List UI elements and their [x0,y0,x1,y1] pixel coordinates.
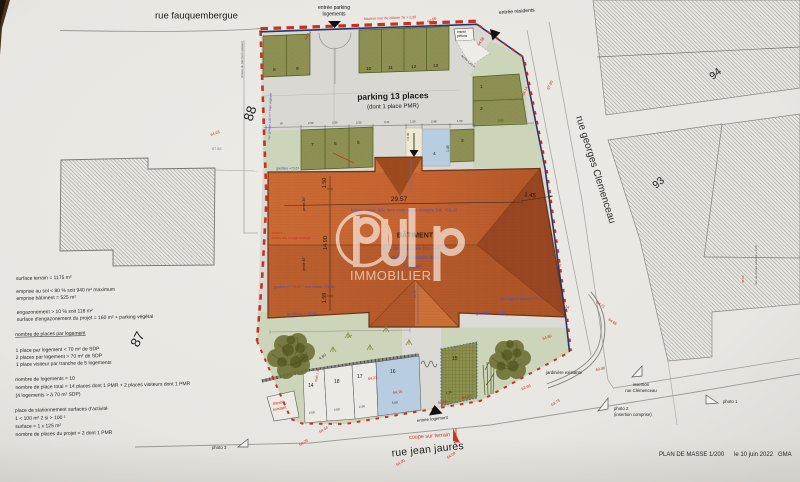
svg-text:3: 3 [461,138,464,144]
svg-text:surface = 1 x 125 m²: surface = 1 x 125 m² [15,423,61,430]
svg-text:6: 6 [334,141,337,147]
svg-text:2: 2 [480,106,483,112]
svg-text:7: 7 [311,142,314,148]
svg-text:17: 17 [357,374,363,380]
svg-text:1.45: 1.45 [446,145,450,152]
svg-text:2.50: 2.50 [356,120,362,124]
svg-text:11: 11 [388,65,393,71]
svg-text:8: 8 [273,67,276,73]
svg-text:gouttière + 73.67: gouttière + 73.67 [287,311,318,316]
svg-text:gouttière +73.67: gouttière +73.67 [276,167,299,171]
svg-text:29.57: 29.57 [391,196,408,203]
svg-text:5: 5 [357,140,360,146]
svg-text:tuiles ton rouge orangé: tuiles ton rouge orangé [272,236,311,240]
svg-text:10: 10 [366,66,372,72]
svg-text:clôture du bâtiment existant: clôture du bâtiment existant [240,41,244,78]
svg-text:IMMOBILIER: IMMOBILIER [350,268,432,283]
svg-text:9: 9 [296,66,299,72]
svg-text:1.50: 1.50 [457,119,463,123]
svg-text:pente 36°: pente 36° [302,196,306,211]
svg-text:insertion: insertion [633,382,650,387]
svg-text:(insertion comprise): (insertion comprise) [614,412,652,417]
svg-text:2.88: 2.88 [431,119,437,123]
svg-text:18: 18 [334,379,340,385]
svg-text:gouttière + 73.67: gouttière + 73.67 [476,311,507,316]
svg-text:gouttière +73.67 · mur bahut +: gouttière +73.67 · mur bahut +74.96 [274,285,335,289]
svg-text:2.50: 2.50 [332,121,338,125]
svg-text:mur de clôture existant + 2,00: mur de clôture existant + 2,00 [754,245,758,285]
svg-text:mur pignon toiture +75.20: mur pignon toiture +75.20 [500,297,543,301]
svg-text:surface terrain = 1175 m²: surface terrain = 1175 m² [16,275,72,282]
svg-text:+64.75: +64.75 [413,290,417,300]
svg-text:67.85: 67.85 [212,147,222,151]
svg-text:W: W [280,122,283,126]
svg-text:65.86: 65.86 [741,275,745,283]
svg-text:2.50: 2.50 [309,410,316,415]
svg-text:1.50: 1.50 [410,120,416,124]
svg-text:2.50: 2.50 [334,407,341,412]
svg-text:entrée parking: entrée parking [318,5,350,11]
svg-text:2.50: 2.50 [308,121,314,125]
svg-text:pente 45°: pente 45° [302,256,306,271]
svg-text:1 < 100 m² 2 si > 100 ²: 1 < 100 m² 2 si > 100 ² [15,415,66,422]
svg-text:photo 1: photo 1 [723,399,738,404]
svg-text:logements: logements [322,12,346,18]
svg-text:± 0.00: ± 0.00 [406,132,410,141]
svg-text:14.90: 14.90 [323,236,329,250]
svg-text:piétons: piétons [457,34,468,38]
svg-text:2.30: 2.30 [359,404,366,409]
svg-text:15: 15 [452,356,458,362]
svg-text:photo 2: photo 2 [614,406,629,411]
svg-text:toiture :: toiture : [272,231,285,235]
svg-text:jardinière existante: jardinière existante [545,370,583,375]
svg-text:16: 16 [390,369,396,375]
svg-text:4: 4 [433,151,436,157]
svg-text:3.21: 3.21 [384,120,390,124]
svg-text:5.00: 5.00 [498,119,504,123]
svg-text:1: 1 [480,84,483,90]
svg-text:5.00: 5.00 [392,400,399,405]
svg-text:1.59: 1.59 [322,293,328,304]
svg-text:12: 12 [411,64,417,70]
svg-text:14: 14 [308,383,314,389]
svg-text:13: 13 [433,63,439,69]
svg-text:rue fauquembergue: rue fauquembergue [155,11,238,22]
svg-text:rue Clémenceau: rue Clémenceau [625,388,657,393]
svg-text:1.50: 1.50 [322,178,328,189]
svg-text:parking 13 places: parking 13 places [357,90,429,102]
